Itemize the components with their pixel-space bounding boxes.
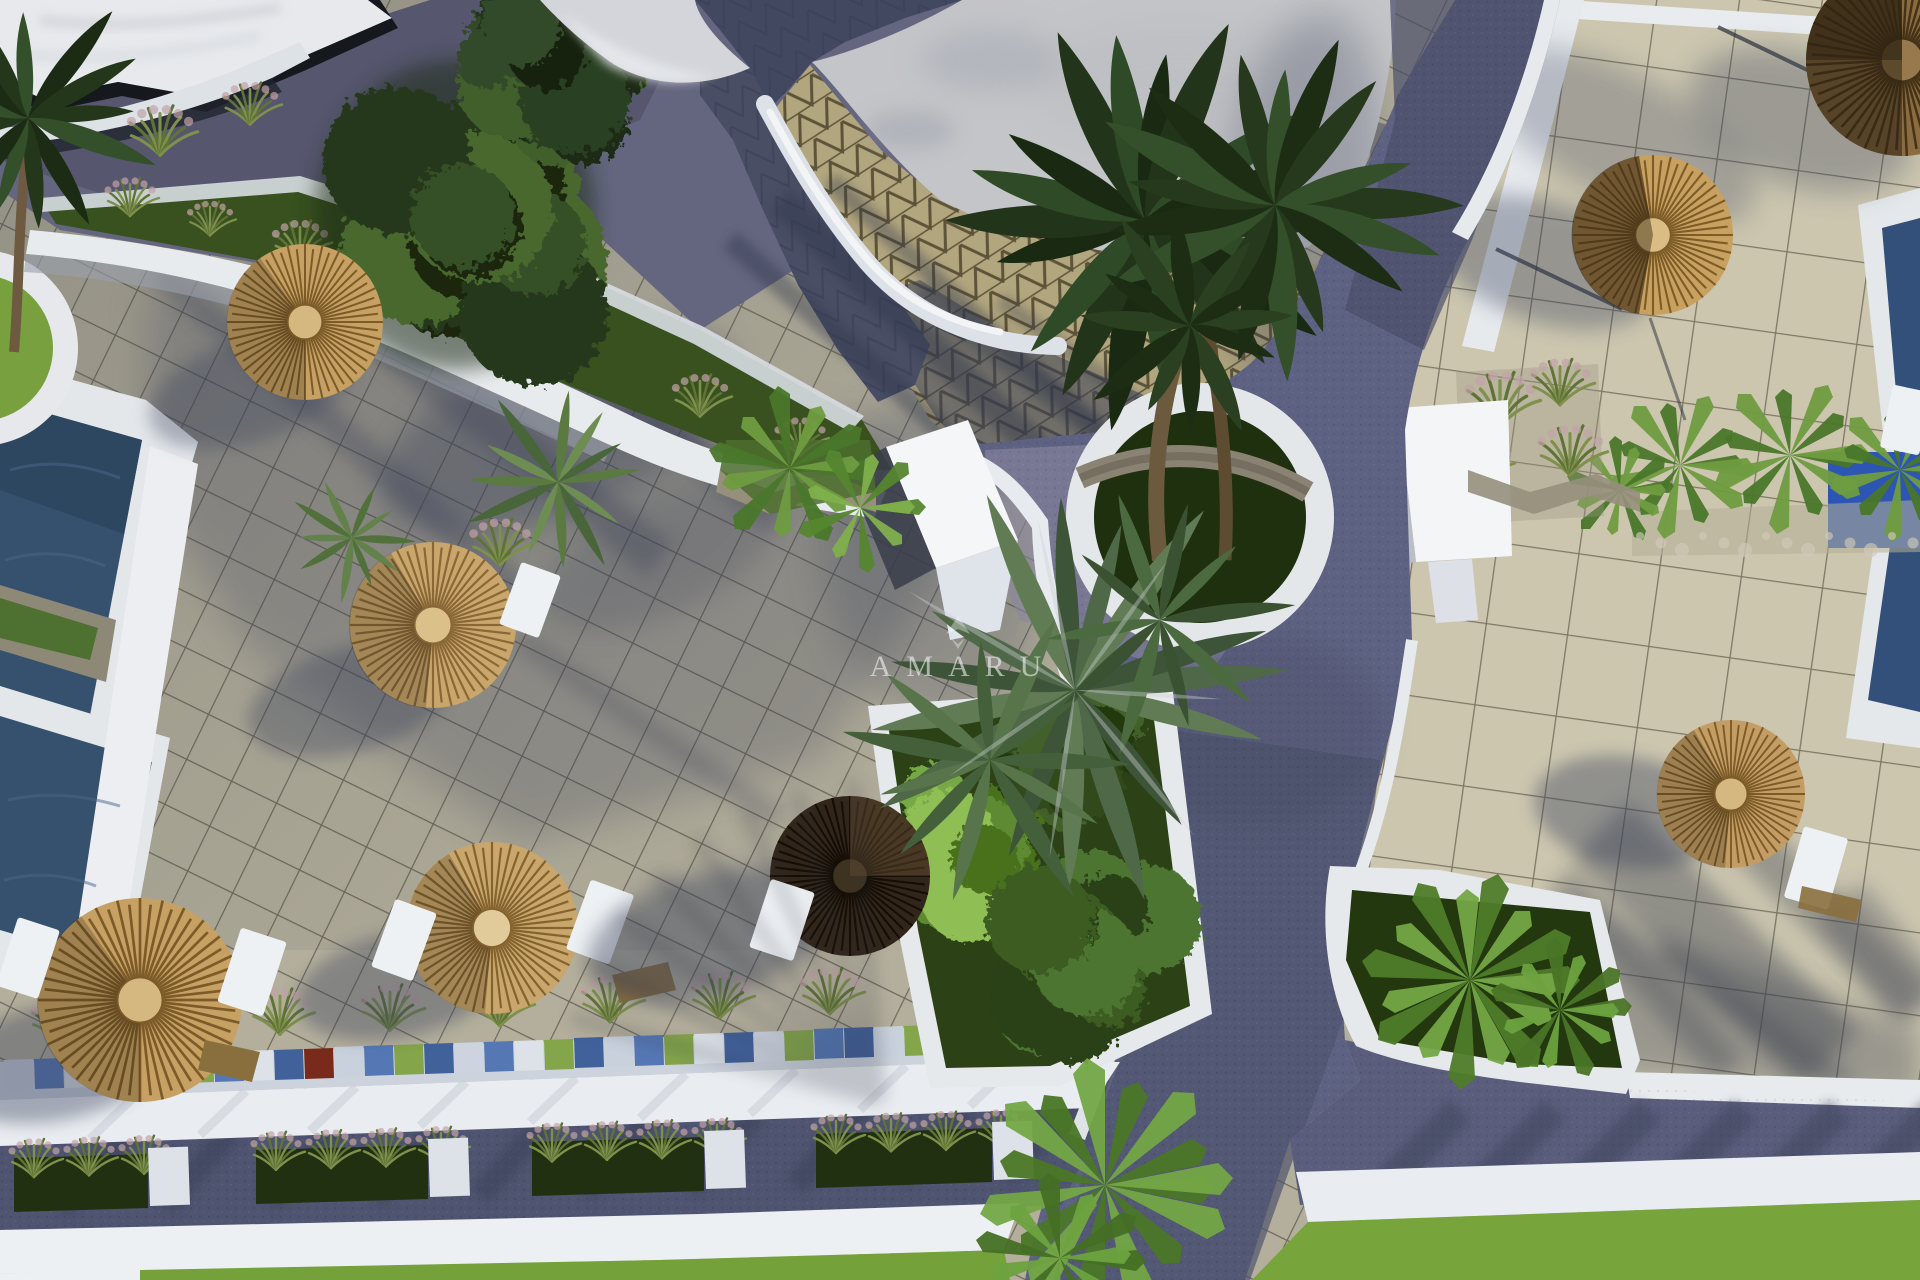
svg-text:AMARU: AMARU xyxy=(870,650,1057,683)
